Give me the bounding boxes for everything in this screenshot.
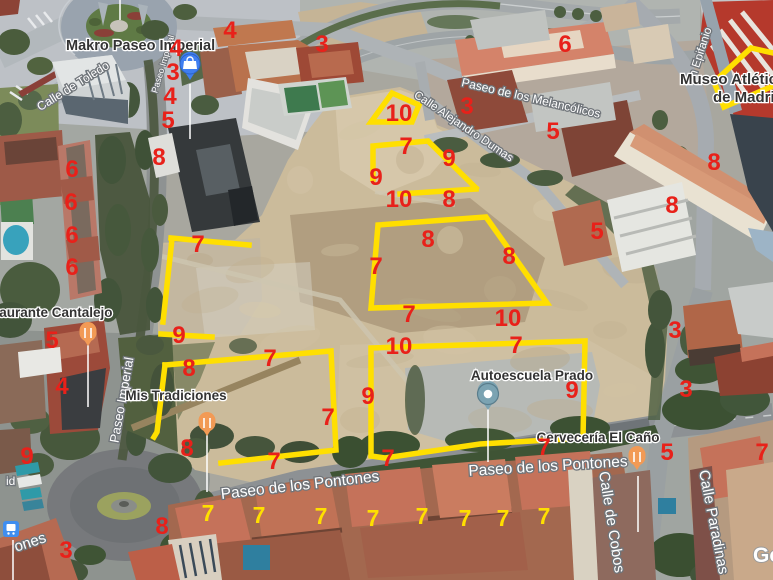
svg-text:7: 7	[381, 445, 394, 472]
svg-text:3: 3	[59, 537, 72, 564]
svg-text:6: 6	[64, 189, 77, 216]
svg-text:Makro Paseo Imperial: Makro Paseo Imperial	[66, 38, 215, 54]
svg-text:8: 8	[707, 149, 720, 176]
svg-text:10: 10	[386, 186, 413, 213]
svg-text:10: 10	[495, 305, 522, 332]
svg-text:7: 7	[538, 503, 551, 529]
svg-text:7: 7	[253, 502, 266, 528]
svg-text:9: 9	[20, 443, 33, 470]
svg-text:7: 7	[416, 503, 429, 529]
svg-text:6: 6	[65, 222, 78, 249]
svg-text:5: 5	[546, 118, 559, 145]
svg-text:7: 7	[755, 439, 768, 466]
svg-text:8: 8	[152, 144, 165, 171]
svg-text:8: 8	[182, 355, 195, 382]
svg-text:8: 8	[665, 192, 678, 219]
svg-text:7: 7	[402, 301, 415, 328]
svg-text:8: 8	[180, 435, 193, 462]
svg-text:7: 7	[367, 505, 380, 531]
svg-text:4: 4	[55, 373, 69, 400]
svg-text:5: 5	[660, 439, 673, 466]
svg-text:5: 5	[590, 218, 603, 245]
svg-text:8: 8	[502, 243, 515, 270]
svg-text:7: 7	[202, 500, 215, 526]
svg-text:7: 7	[497, 505, 510, 531]
svg-text:6: 6	[65, 254, 78, 281]
svg-text:7: 7	[191, 231, 204, 258]
svg-text:Go: Go	[753, 544, 773, 567]
svg-text:4: 4	[223, 17, 237, 44]
svg-text:7: 7	[509, 332, 522, 359]
svg-text:id: id	[6, 474, 15, 488]
svg-text:5: 5	[45, 327, 58, 354]
svg-text:9: 9	[442, 145, 455, 172]
svg-text:3: 3	[460, 93, 473, 120]
svg-text:8: 8	[155, 513, 168, 540]
svg-text:de Madrid: de Madrid	[713, 89, 773, 106]
svg-text:7: 7	[263, 345, 276, 372]
svg-text:7: 7	[459, 505, 472, 531]
svg-text:7: 7	[399, 133, 412, 160]
svg-text:9: 9	[565, 377, 578, 404]
svg-text:Museo Atlético: Museo Atlético	[680, 71, 773, 88]
svg-text:Restaurante Cantalejo: Restaurante Cantalejo	[0, 305, 113, 320]
svg-text:8: 8	[421, 226, 434, 253]
svg-text:10: 10	[386, 333, 413, 360]
svg-text:3: 3	[315, 31, 328, 58]
svg-text:7: 7	[315, 503, 328, 529]
svg-text:7: 7	[369, 253, 382, 280]
svg-text:9: 9	[369, 164, 382, 191]
svg-text:3: 3	[166, 59, 179, 86]
svg-text:7: 7	[267, 448, 280, 475]
svg-text:Mis Tradiciones: Mis Tradiciones	[125, 388, 226, 403]
svg-text:7: 7	[537, 434, 550, 461]
svg-text:9: 9	[361, 383, 374, 410]
svg-text:9: 9	[172, 322, 185, 349]
svg-text:4: 4	[169, 35, 183, 62]
svg-text:3: 3	[668, 317, 681, 344]
svg-text:8: 8	[442, 186, 455, 213]
svg-text:6: 6	[558, 31, 571, 58]
svg-text:4: 4	[163, 83, 177, 110]
svg-text:10: 10	[386, 100, 413, 127]
svg-text:3: 3	[679, 376, 692, 403]
svg-text:5: 5	[161, 107, 174, 134]
svg-text:7: 7	[321, 404, 334, 431]
svg-text:Cervecería El Caño: Cervecería El Caño	[536, 430, 659, 445]
svg-text:6: 6	[65, 156, 78, 183]
